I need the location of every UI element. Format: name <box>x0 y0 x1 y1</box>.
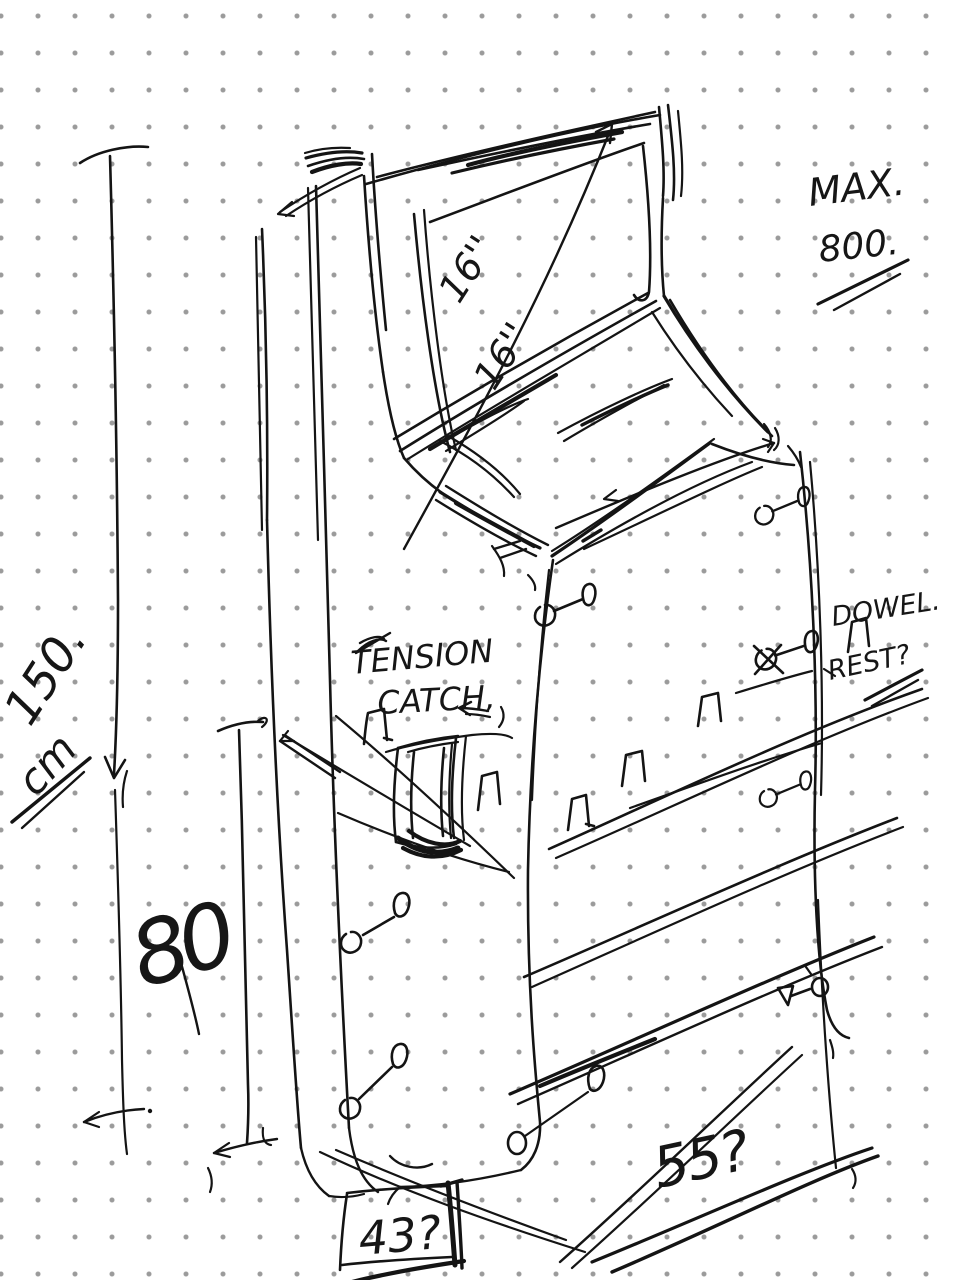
dowel-marker <box>760 771 811 806</box>
annotation-dowel-line2: REST? <box>825 639 913 687</box>
dot-grid-paper: MAX. 800. 16'' 16'' TENSION CATCH, DOWEL… <box>0 0 960 1280</box>
annotation-screen-diag-bottom: 16'' <box>465 315 540 397</box>
annotation-tension-line1: TENSION <box>349 632 494 682</box>
annotation-max-line1: MAX. <box>806 159 908 214</box>
annotation-height-value: 150. <box>0 614 98 734</box>
annotation-dowel-line1: DOWEL. <box>829 585 942 633</box>
annotation-max-line2: 800. <box>817 222 901 271</box>
tension-catch-buckle <box>280 731 512 857</box>
annotation-width-value: 80 <box>119 882 244 1009</box>
annotation-height-unit: cm <box>7 724 86 804</box>
annotation-tension-line2: CATCH, <box>376 678 496 722</box>
annotation-screen-diag-top: 16'' <box>430 228 505 310</box>
annotation-depth-value: 55? <box>647 1118 755 1202</box>
dowel-marker <box>755 487 809 524</box>
dowel-marker <box>340 1044 407 1119</box>
cabinet-head <box>364 105 779 458</box>
cabinet-concept-sketch: MAX. 800. 16'' 16'' TENSION CATCH, DOWEL… <box>0 0 960 1280</box>
annotations: MAX. 800. 16'' 16'' TENSION CATCH, DOWEL… <box>0 159 942 1266</box>
dowel-marker <box>341 893 409 953</box>
annotation-base-value: 43? <box>356 1205 443 1266</box>
dowel-marker <box>755 627 818 673</box>
